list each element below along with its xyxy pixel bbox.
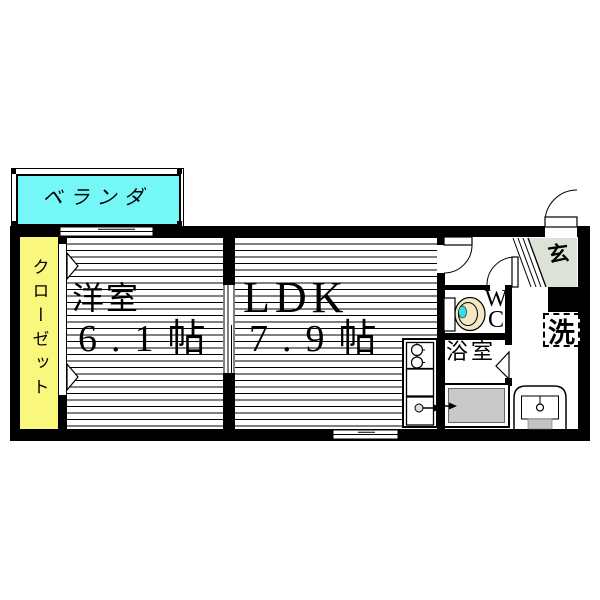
sliding-door (223, 285, 235, 373)
washbasin-icon (514, 386, 566, 429)
western-room-size: 6.1帖 (78, 320, 220, 358)
ldk-name: LDK (243, 276, 348, 320)
ldk-size: 7.9帖 (249, 320, 391, 358)
kitchen-unit (403, 339, 442, 427)
bathroom-label: 浴室 (446, 341, 496, 363)
ldk-door (437, 237, 472, 273)
bottom-window (333, 430, 398, 439)
bathroom-door-chevron (496, 352, 509, 379)
closet-door-triangles (67, 253, 78, 390)
western-room-name: 洋室 (72, 282, 140, 314)
closet-label: クローゼット (20, 230, 58, 429)
entrance-door (545, 190, 577, 237)
bathtub-icon (438, 384, 509, 427)
washing-machine-box: 洗 (543, 313, 580, 347)
entrance-label: 玄 (547, 243, 571, 267)
floor-plan: 洗 (0, 0, 600, 600)
wc-label: WC (483, 289, 509, 331)
top-window (60, 227, 153, 236)
washer-label: 洗 (548, 311, 575, 350)
wc-door (487, 257, 518, 287)
balcony-label: ベランダ (16, 174, 177, 222)
toilet-icon (444, 298, 485, 332)
